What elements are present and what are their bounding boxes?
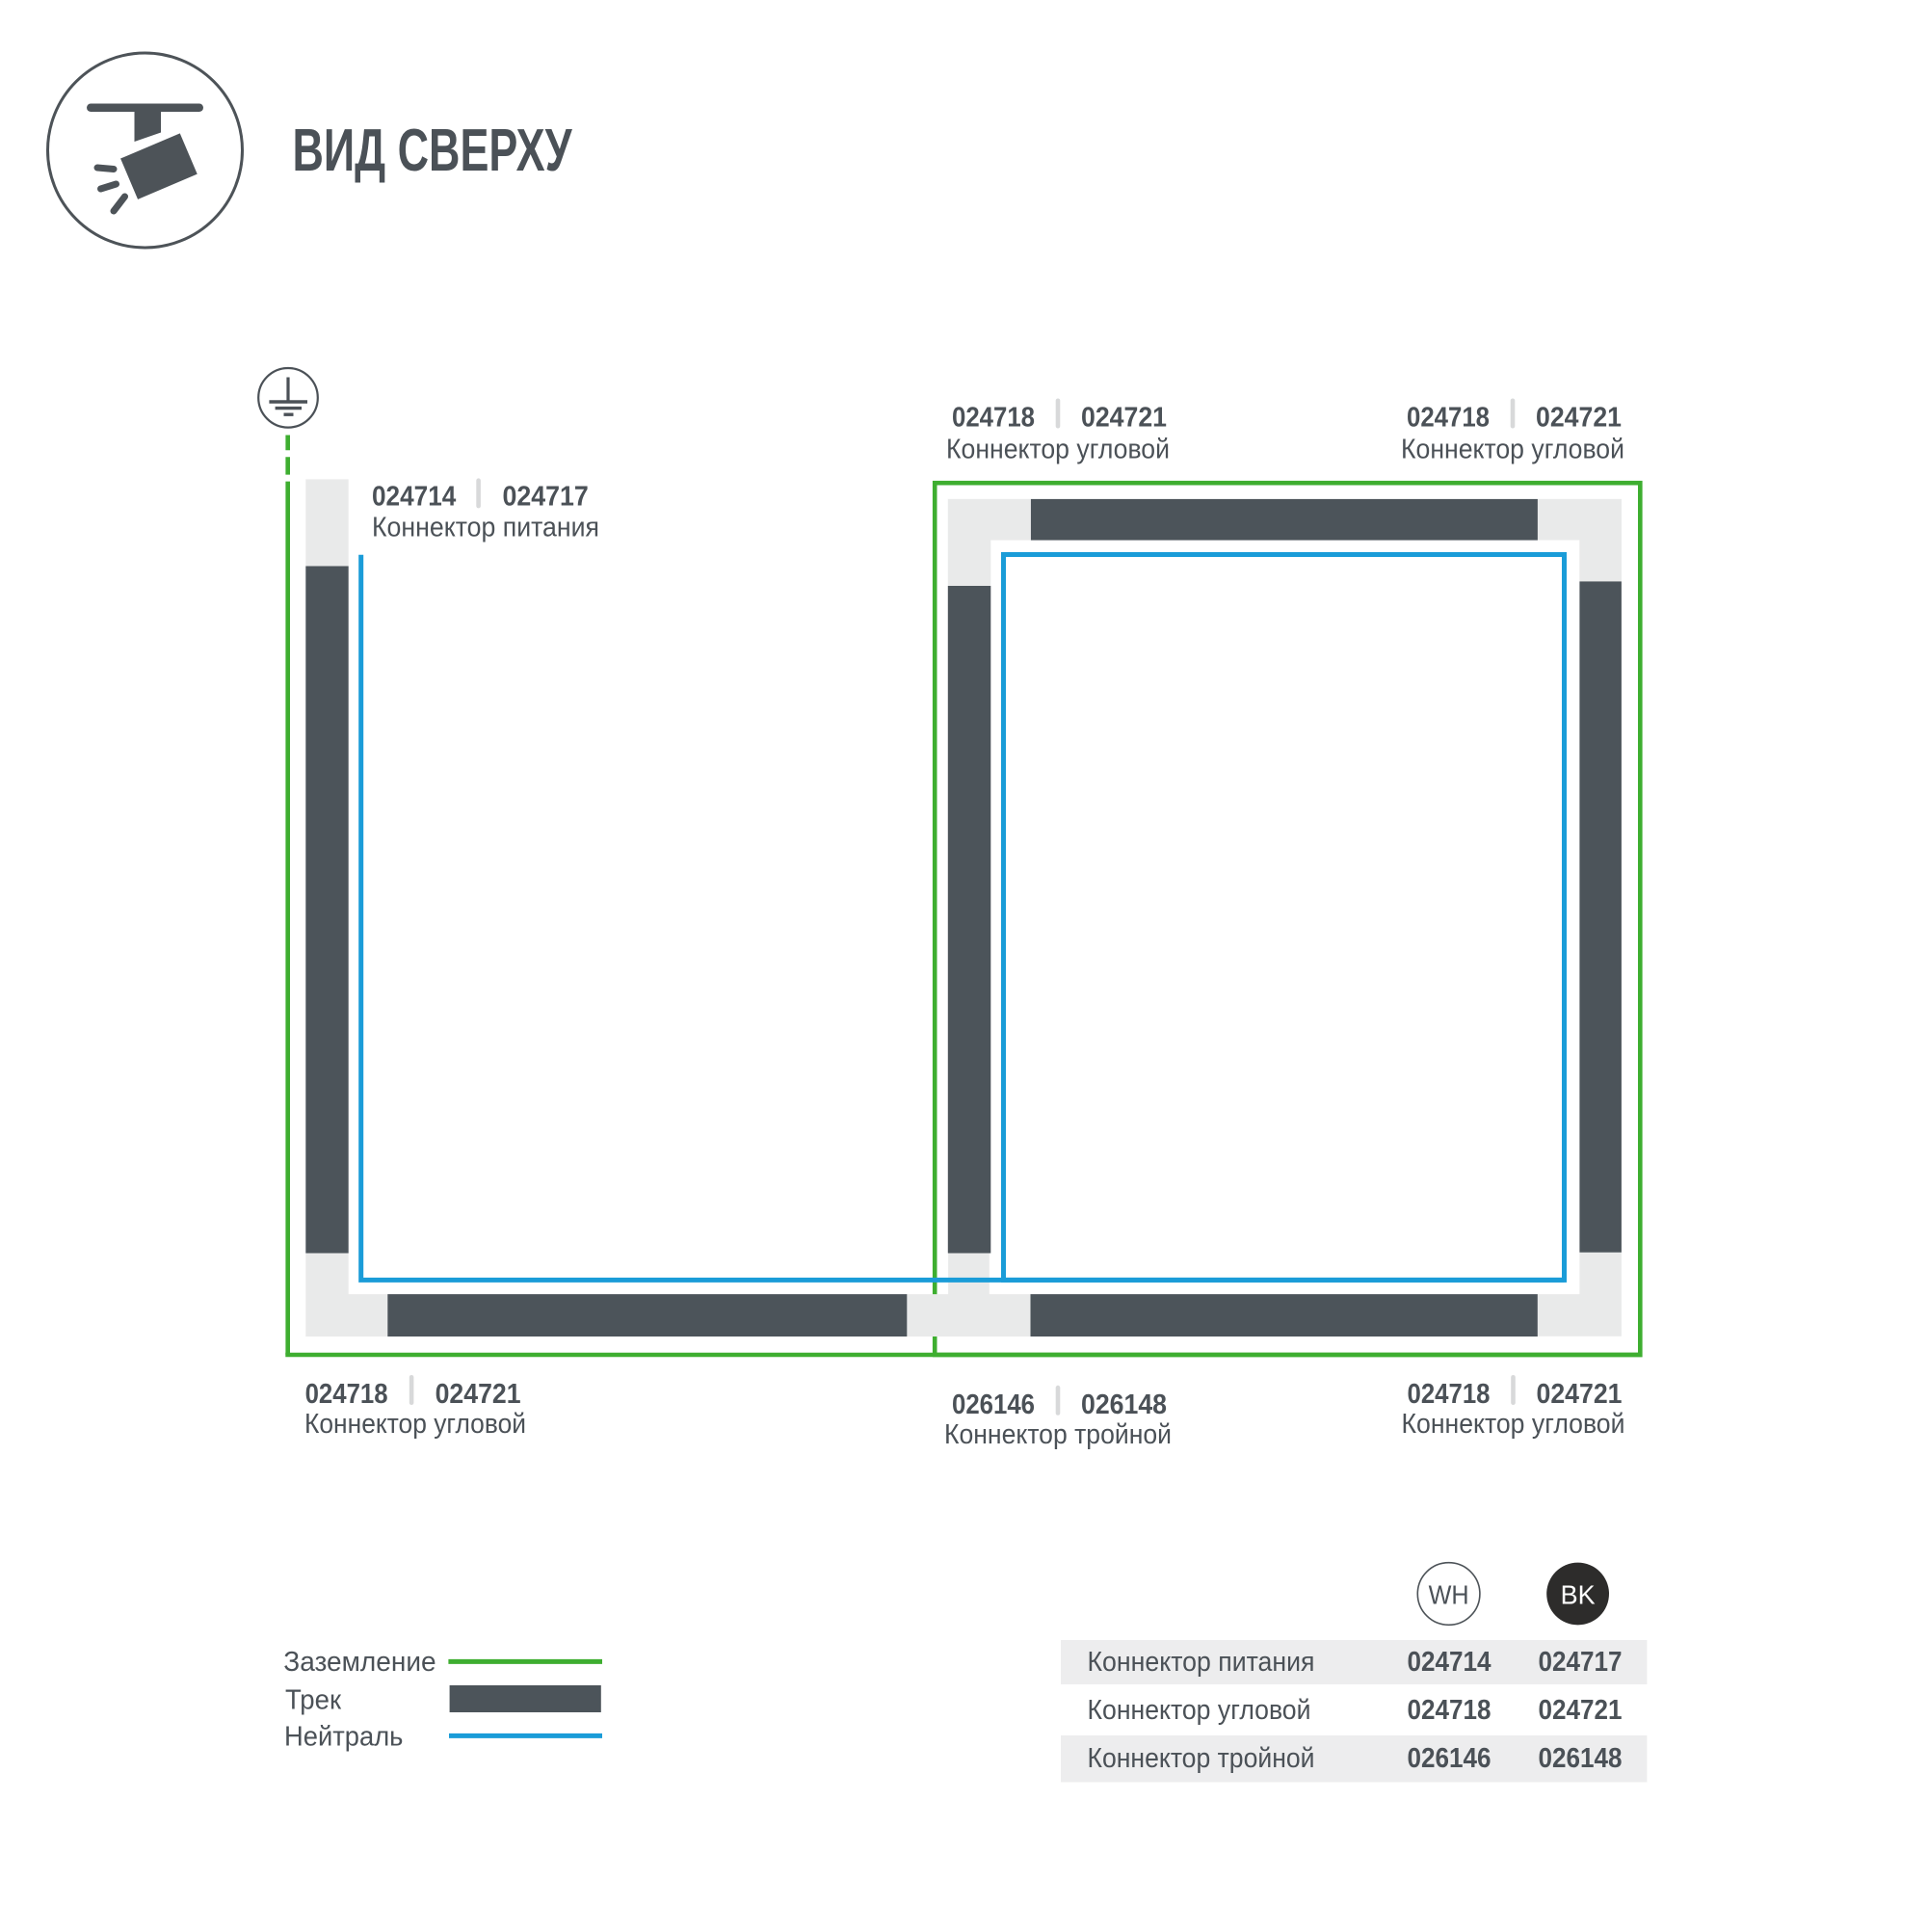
svg-text:024718: 024718	[305, 1379, 388, 1410]
svg-text:026148: 026148	[1081, 1389, 1167, 1420]
svg-text:BK: BK	[1561, 1580, 1596, 1610]
svg-text:024718: 024718	[1408, 1379, 1491, 1410]
svg-text:Трек: Трек	[285, 1684, 341, 1715]
svg-text:Коннектор угловой: Коннектор угловой	[946, 435, 1170, 465]
svg-text:Коннектор угловой: Коннектор угловой	[304, 1409, 526, 1440]
svg-text:Коннектор тройной: Коннектор тройной	[944, 1419, 1172, 1450]
svg-text:024714: 024714	[372, 482, 456, 513]
svg-text:Коннектор угловой: Коннектор угловой	[1401, 435, 1624, 465]
svg-text:Заземление: Заземление	[283, 1647, 436, 1678]
svg-text:026146: 026146	[1408, 1743, 1491, 1774]
svg-text:Коннектор питания: Коннектор питания	[372, 512, 599, 543]
svg-text:024714: 024714	[1408, 1647, 1491, 1678]
svg-text:024721: 024721	[1537, 1379, 1623, 1410]
svg-text:026146: 026146	[952, 1389, 1035, 1420]
svg-text:026148: 026148	[1539, 1743, 1623, 1774]
svg-text:024721: 024721	[1536, 403, 1622, 434]
svg-text:024717: 024717	[1539, 1647, 1623, 1678]
svg-text:Коннектор угловой: Коннектор угловой	[1088, 1695, 1311, 1726]
svg-text:024718: 024718	[952, 403, 1035, 434]
svg-text:ВИД СВЕРХУ: ВИД СВЕРХУ	[293, 118, 573, 184]
svg-text:024721: 024721	[1539, 1695, 1623, 1726]
svg-text:024718: 024718	[1407, 403, 1490, 434]
svg-text:Коннектор тройной: Коннектор тройной	[1088, 1743, 1315, 1774]
svg-text:024721: 024721	[1081, 403, 1167, 434]
svg-text:Коннектор угловой: Коннектор угловой	[1402, 1409, 1625, 1440]
svg-text:Нейтраль: Нейтраль	[284, 1722, 403, 1753]
svg-text:Коннектор питания: Коннектор питания	[1088, 1647, 1315, 1678]
svg-text:024717: 024717	[503, 482, 589, 513]
svg-text:024718: 024718	[1408, 1695, 1491, 1726]
svg-text:024721: 024721	[436, 1379, 521, 1410]
svg-text:WH: WH	[1429, 1580, 1469, 1610]
